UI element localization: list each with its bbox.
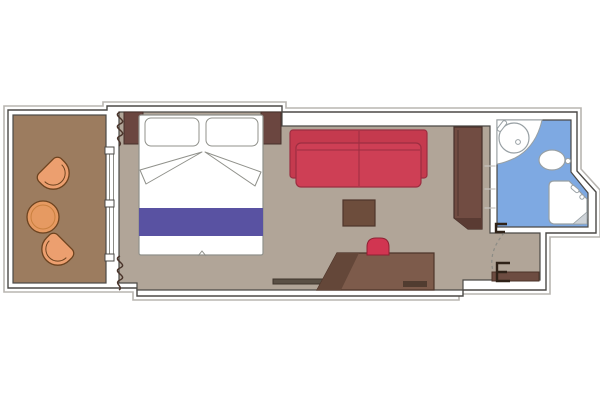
window-mullion — [105, 147, 114, 154]
sofa — [290, 130, 427, 187]
balcony-table — [27, 201, 59, 233]
bed-runner — [139, 208, 263, 236]
nightstand-right — [261, 112, 281, 144]
desk-chair — [367, 238, 389, 255]
window-mullion — [105, 254, 114, 261]
toilet — [539, 150, 565, 170]
toilet-flush — [565, 158, 570, 163]
pillow-right — [206, 118, 258, 146]
window-mullion — [105, 200, 114, 207]
coffee-table — [343, 200, 375, 226]
desk — [317, 253, 434, 290]
cabin-floor-plan — [0, 0, 600, 400]
double-bed — [139, 115, 263, 256]
entry-door — [492, 272, 539, 281]
pillow-left — [145, 118, 199, 146]
desk-drawer — [403, 281, 427, 287]
floor-plan-canvas — [0, 0, 600, 400]
wardrobe — [454, 127, 482, 229]
